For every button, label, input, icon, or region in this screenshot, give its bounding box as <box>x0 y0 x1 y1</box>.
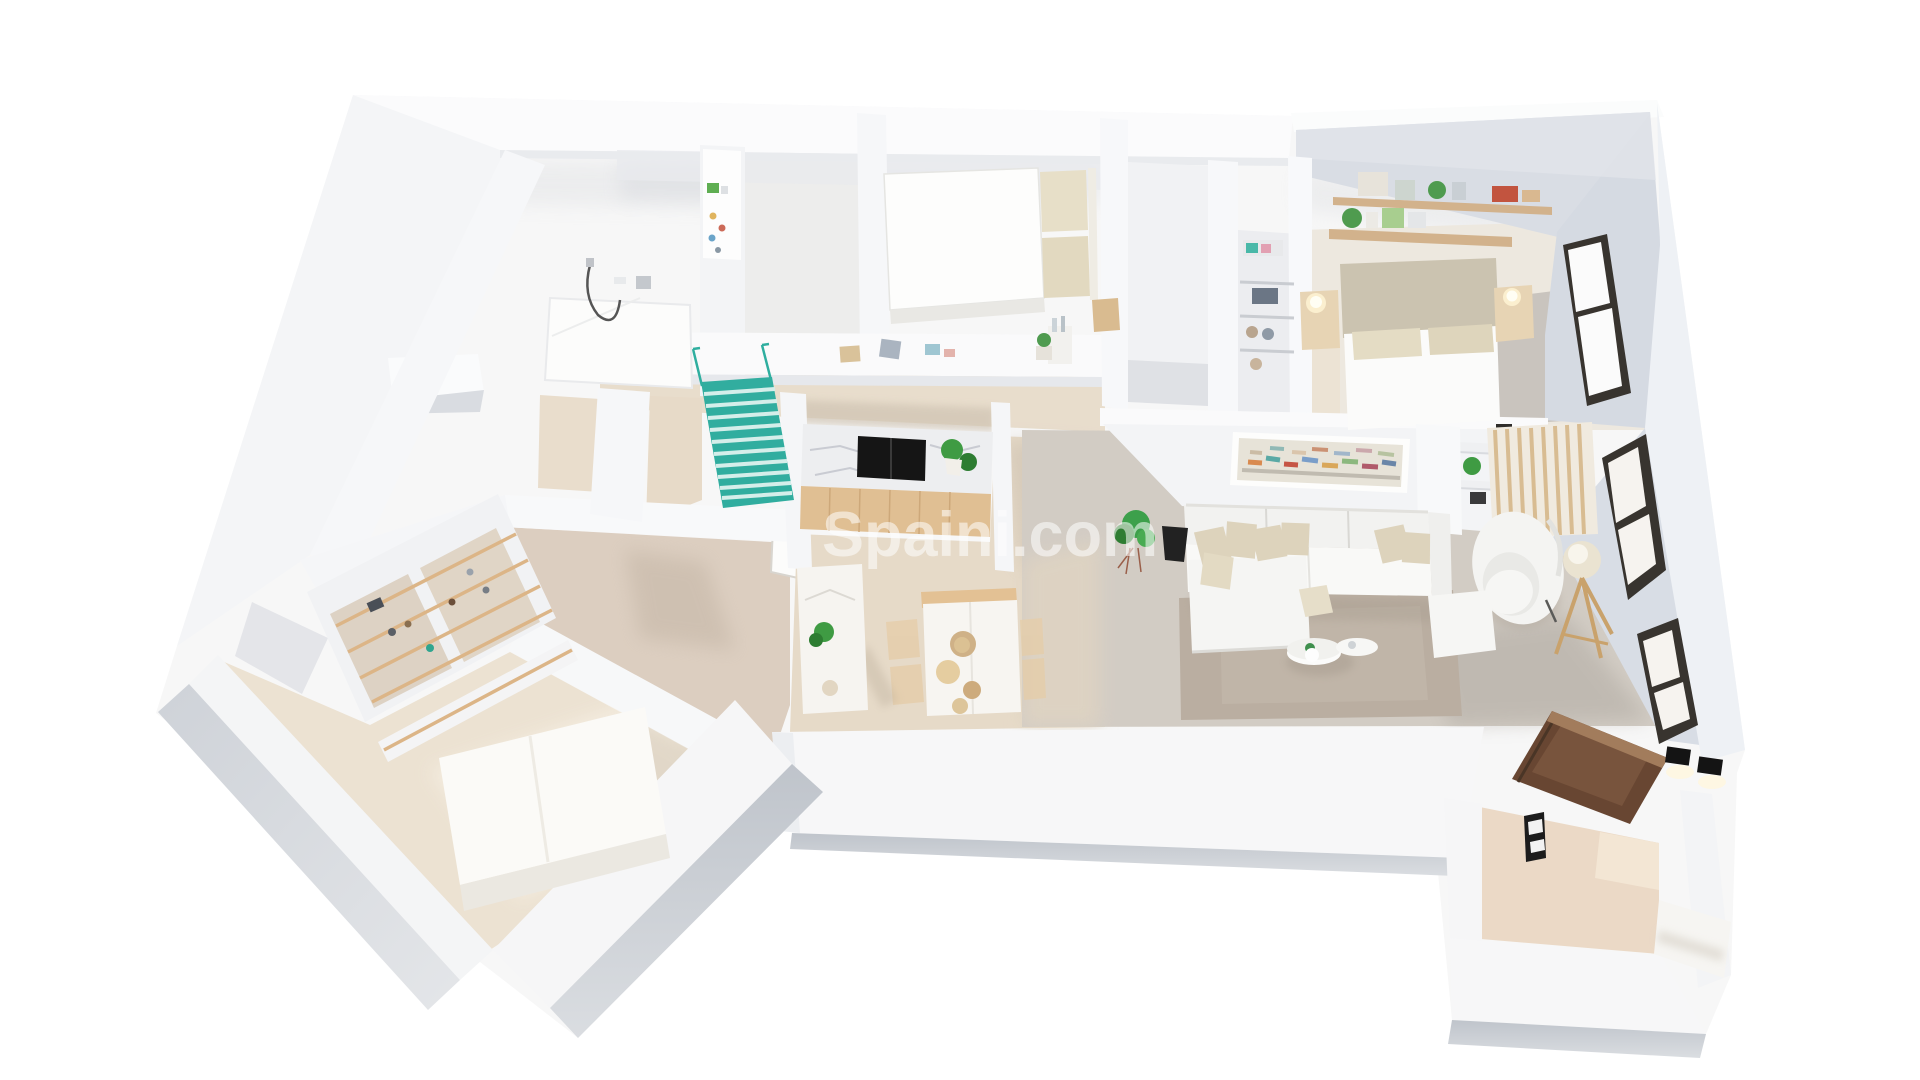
svg-text:Spaini.com: Spaini.com <box>822 500 1158 570</box>
